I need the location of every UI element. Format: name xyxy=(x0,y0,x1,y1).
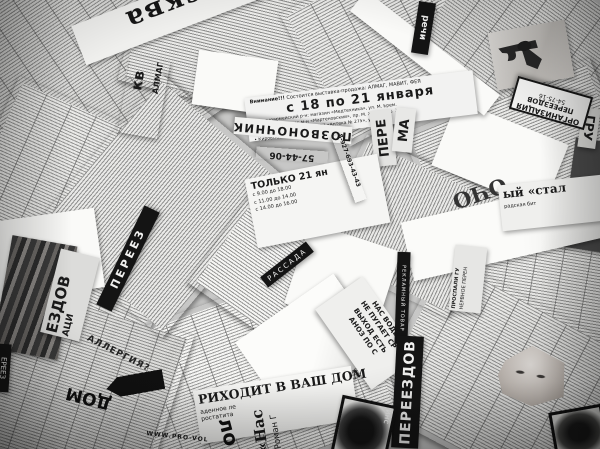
revolver-silhouette xyxy=(492,24,570,85)
newspaper-collage-photo: осква кв АЛМАГ речи ОРГАНИЗАЦИЯ ПЕРЕЕЗДО… xyxy=(0,0,600,449)
prospali-fragment: ПРОСПАЛИ ГУ НЕРВНОЕ ПЕРЕН xyxy=(449,245,488,314)
pere-text: ПЕРЕ xyxy=(374,118,393,158)
book-spine-fragment: «Нас Роман Г xyxy=(246,395,296,449)
kv-text: кв xyxy=(127,70,148,93)
almag-text: АЛМАГ xyxy=(150,62,164,95)
rechi-text: речи xyxy=(417,15,431,41)
erez-text: ЕРЕЕЗ xyxy=(0,357,8,379)
ma-text: МА xyxy=(395,118,412,142)
pereezdov-text: ПЕРЕЕЗДОВ xyxy=(397,339,418,444)
ins-text: ИНС xyxy=(375,409,392,449)
reklamny-text: РЕКЛАМНЫЙ ТОВАР xyxy=(398,265,406,332)
